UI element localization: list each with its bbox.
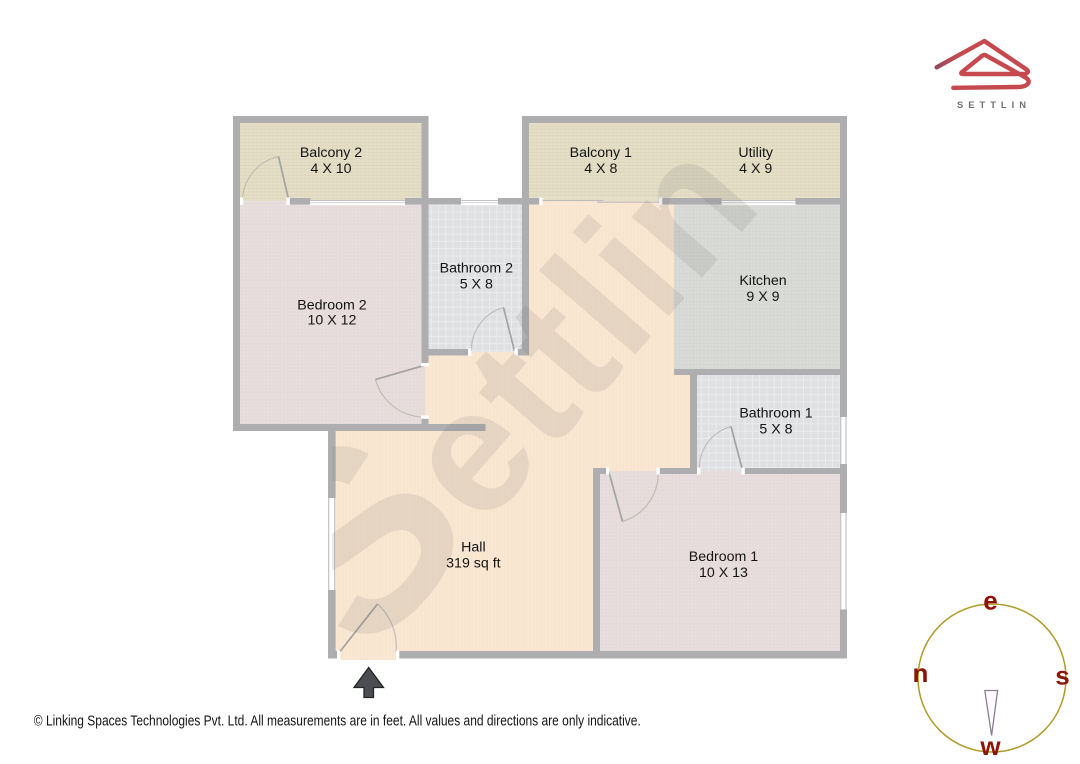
- svg-text:Kitchen: Kitchen: [739, 273, 786, 289]
- svg-text:Bathroom 2: Bathroom 2: [440, 261, 513, 277]
- svg-text:4 X 10: 4 X 10: [310, 161, 351, 177]
- svg-text:Bathroom 1: Bathroom 1: [739, 405, 812, 421]
- svg-text:e: e: [983, 586, 997, 616]
- svg-text:© Linking Spaces Technologies: © Linking Spaces Technologies Pvt. Ltd. …: [34, 714, 641, 730]
- svg-text:s: s: [1055, 661, 1069, 691]
- svg-text:4 X 9: 4 X 9: [739, 161, 772, 177]
- svg-text:5 X 8: 5 X 8: [759, 421, 792, 437]
- svg-text:4 X 8: 4 X 8: [584, 161, 617, 177]
- svg-text:SETTLIN: SETTLIN: [957, 99, 1031, 110]
- svg-text:w: w: [979, 731, 1001, 761]
- svg-text:n: n: [913, 658, 929, 688]
- svg-text:Hall: Hall: [461, 540, 485, 556]
- svg-text:5 X 8: 5 X 8: [460, 277, 493, 293]
- svg-text:Bedroom 1: Bedroom 1: [689, 549, 759, 565]
- svg-text:319 sq ft: 319 sq ft: [446, 556, 500, 572]
- svg-text:Utility: Utility: [738, 145, 774, 161]
- svg-text:Balcony 1: Balcony 1: [570, 145, 632, 161]
- svg-text:Bedroom 2: Bedroom 2: [297, 297, 367, 313]
- svg-text:Balcony 2: Balcony 2: [300, 145, 362, 161]
- svg-text:9 X 9: 9 X 9: [746, 289, 779, 305]
- svg-text:10 X 12: 10 X 12: [308, 313, 357, 329]
- svg-text:10 X 13: 10 X 13: [699, 565, 748, 581]
